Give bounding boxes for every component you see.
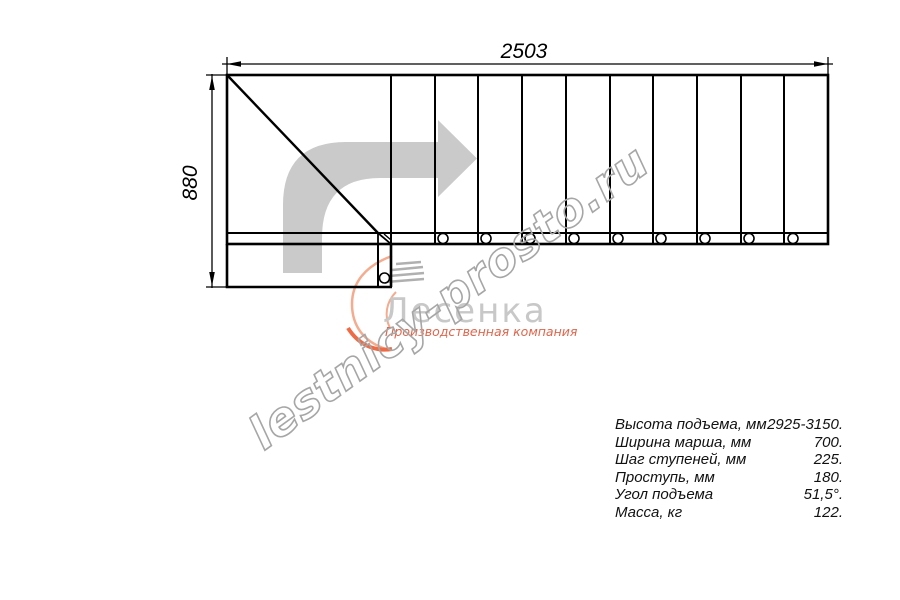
dim-arrowhead-down (209, 272, 215, 286)
spec-row: Масса, кг 122. (615, 504, 843, 522)
newel-circle (380, 273, 390, 283)
spec-row: Шаг ступеней, мм 225. (615, 451, 843, 469)
stair-plan-page: Лесенка Производственная компания (0, 0, 900, 600)
spec-value: 2925-3150. (767, 416, 843, 434)
dimension-top: 2503 (222, 40, 833, 76)
spec-label: Проступь, мм (615, 469, 715, 487)
dimension-left: 880 (179, 74, 226, 288)
spec-value: 51,5°. (804, 486, 843, 504)
baluster-circle (613, 234, 623, 244)
baluster-circle (788, 234, 798, 244)
spec-label: Масса, кг (615, 504, 682, 522)
spec-value: 180. (814, 469, 843, 487)
spec-value: 122. (814, 504, 843, 522)
dim-arrowhead-left (227, 61, 241, 67)
dim-arrowhead-up (209, 76, 215, 90)
direction-arrow-shape (283, 120, 477, 273)
spec-label: Угол подъема (615, 486, 713, 504)
direction-arrow (283, 120, 477, 273)
spec-row: Ширина марша, мм 700. (615, 434, 843, 452)
spec-row: Проступь, мм 180. (615, 469, 843, 487)
spec-label: Шаг ступеней, мм (615, 451, 746, 469)
spec-table: Высота подъема, мм 2925-3150. Ширина мар… (615, 416, 843, 522)
baluster-circle (700, 234, 710, 244)
spec-label: Ширина марша, мм (615, 434, 751, 452)
baluster-circle (656, 234, 666, 244)
dim-arrowhead-right (814, 61, 828, 67)
spec-row: Угол подъема 51,5°. (615, 486, 843, 504)
spec-label: Высота подъема, мм (615, 416, 767, 434)
spec-value: 225. (814, 451, 843, 469)
baluster-circle (744, 234, 754, 244)
baluster-circle (438, 234, 448, 244)
spec-value: 700. (814, 434, 843, 452)
dimension-left-value: 880 (179, 165, 202, 200)
spec-row: Высота подъема, мм 2925-3150. (615, 416, 843, 434)
dimension-top-value: 2503 (500, 40, 548, 63)
